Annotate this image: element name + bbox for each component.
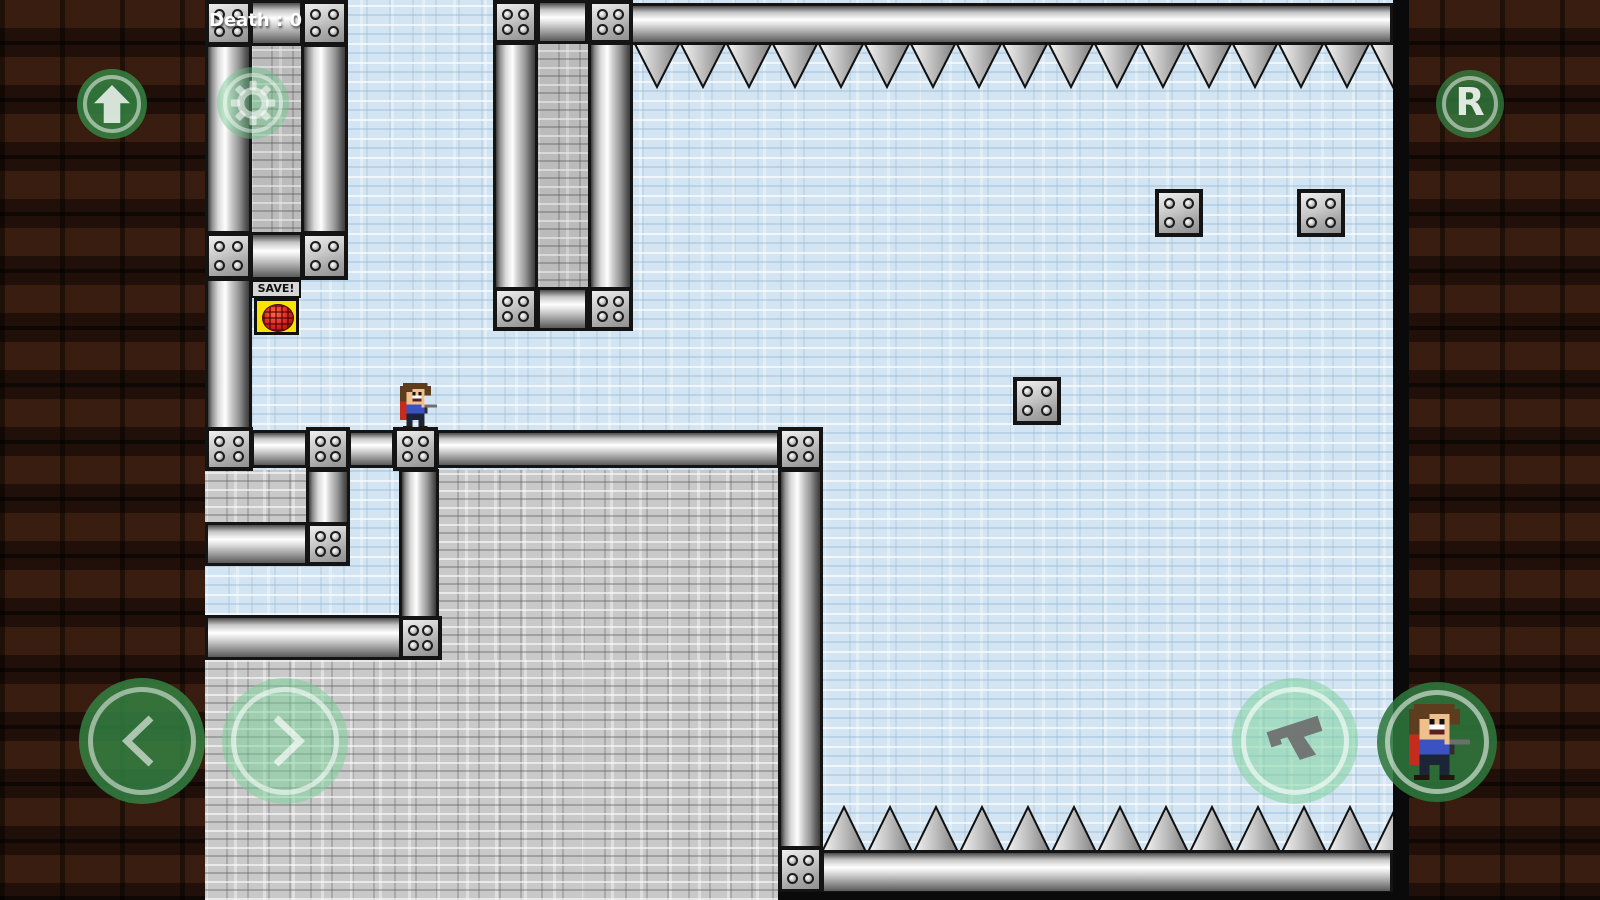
jump-button[interactable] <box>77 69 147 139</box>
rivet <box>233 451 244 462</box>
rivet <box>315 436 326 447</box>
rivet <box>1183 198 1194 209</box>
rivet <box>214 241 225 252</box>
metal-pillar <box>301 44 348 234</box>
rivet <box>330 436 341 447</box>
floating-block <box>1013 377 1061 425</box>
rivet <box>597 296 608 307</box>
rivet <box>1325 217 1336 228</box>
metal-plate <box>588 0 633 44</box>
platform-beam <box>251 430 308 468</box>
metal-beam <box>205 522 308 566</box>
rivet <box>1325 198 1336 209</box>
floating-block <box>1297 189 1345 237</box>
metal-plate <box>301 232 348 280</box>
metal-plate <box>306 522 350 566</box>
rivet <box>315 531 326 542</box>
rivet <box>1306 198 1317 209</box>
death-counter: Death : 0 <box>209 10 302 31</box>
save-sign: SAVE! <box>251 280 301 298</box>
column-brick-core <box>537 40 589 290</box>
rivet <box>1041 405 1052 416</box>
floor-shadow <box>778 892 1393 900</box>
metal-pillar <box>493 42 538 290</box>
rivet <box>502 24 513 35</box>
metal-beam <box>205 615 402 660</box>
rivet <box>310 26 321 37</box>
rivet <box>1306 217 1317 228</box>
platform-beam <box>436 430 780 468</box>
arrow-up-icon <box>94 85 130 123</box>
rivet <box>330 531 341 542</box>
rivet <box>232 260 243 271</box>
rivet <box>803 436 814 447</box>
rivet <box>613 24 624 35</box>
rivet <box>1164 198 1175 209</box>
metal-plate <box>393 427 438 471</box>
rivet <box>232 241 243 252</box>
rivet <box>1183 217 1194 228</box>
rivet <box>422 625 433 636</box>
player-character <box>397 383 437 429</box>
metal-beam <box>537 0 588 44</box>
metal-pillar <box>588 42 633 290</box>
metal-plate <box>493 0 538 44</box>
rivet <box>328 9 339 20</box>
floor-spikes <box>821 804 1393 852</box>
metal-pillar <box>205 278 252 430</box>
metal-pillar <box>306 469 350 525</box>
rivet <box>787 451 798 462</box>
game-stage: SAVE! Death : 0 R <box>0 0 1600 900</box>
move-left-button[interactable] <box>79 678 205 804</box>
platform-beam <box>348 430 395 468</box>
metal-plate <box>205 427 253 471</box>
rivet <box>310 9 321 20</box>
player-sprite-icon <box>1404 704 1470 780</box>
metal-beam <box>250 232 303 280</box>
metal-plate <box>306 427 350 471</box>
metal-plate <box>399 616 442 660</box>
rivet <box>422 640 433 651</box>
chevron-left-icon <box>107 706 177 776</box>
rivet <box>803 451 814 462</box>
rivet <box>518 24 529 35</box>
floating-block <box>1155 189 1203 237</box>
rivet <box>613 296 624 307</box>
metal-plate <box>778 427 823 471</box>
shoot-button[interactable] <box>1232 678 1358 804</box>
rivet <box>214 260 225 271</box>
rivet <box>1022 386 1033 397</box>
rivet <box>1022 405 1033 416</box>
rivet <box>502 296 513 307</box>
rivet <box>597 24 608 35</box>
rivet <box>1164 217 1175 228</box>
metal-pillar <box>778 469 823 852</box>
rivet <box>402 436 413 447</box>
rivet <box>787 436 798 447</box>
rivet <box>214 436 225 447</box>
save-sign-label: SAVE! <box>258 282 295 295</box>
character-button[interactable] <box>1377 682 1497 802</box>
rivet <box>310 241 321 252</box>
metal-plate <box>301 0 348 46</box>
ceiling-beam <box>630 3 1393 45</box>
save-block <box>254 298 299 335</box>
rivet <box>518 9 529 20</box>
chevron-right-icon <box>250 706 320 776</box>
rivet <box>597 9 608 20</box>
rivet <box>613 9 624 20</box>
rivet <box>330 451 341 462</box>
rivet <box>310 260 321 271</box>
pistol-icon <box>1246 692 1344 790</box>
metal-plate <box>588 287 633 331</box>
rivet <box>328 260 339 271</box>
rivet <box>328 26 339 37</box>
restart-button[interactable]: R <box>1436 70 1504 138</box>
ceiling-spikes <box>634 44 1393 90</box>
settings-button[interactable] <box>217 67 289 139</box>
rivet <box>1041 386 1052 397</box>
rivet <box>787 855 798 866</box>
rivet <box>787 873 798 884</box>
rivet <box>402 451 413 462</box>
rivet <box>408 625 419 636</box>
rivet <box>518 311 529 322</box>
rivet <box>597 311 608 322</box>
rivet <box>315 451 326 462</box>
rivet <box>502 9 513 20</box>
rivet <box>502 311 513 322</box>
metal-plate <box>205 232 252 280</box>
floor-beam <box>821 850 1393 894</box>
rivet <box>408 640 419 651</box>
rivet <box>330 546 341 557</box>
rivet <box>233 436 244 447</box>
rivet <box>518 296 529 307</box>
restart-label: R <box>1455 80 1484 124</box>
rivet <box>803 873 814 884</box>
metal-plate <box>778 846 823 893</box>
gear-icon <box>230 80 276 126</box>
metal-pillar <box>399 469 439 619</box>
save-button-ball <box>262 304 294 332</box>
rivet <box>315 546 326 557</box>
metal-plate <box>493 287 538 331</box>
rivet <box>613 311 624 322</box>
rivet <box>328 241 339 252</box>
brick-fill <box>205 470 306 525</box>
move-right-button[interactable] <box>222 678 348 804</box>
rivet <box>418 451 429 462</box>
rivet <box>803 855 814 866</box>
rivet <box>214 451 225 462</box>
metal-beam <box>537 287 588 331</box>
rivet <box>418 436 429 447</box>
